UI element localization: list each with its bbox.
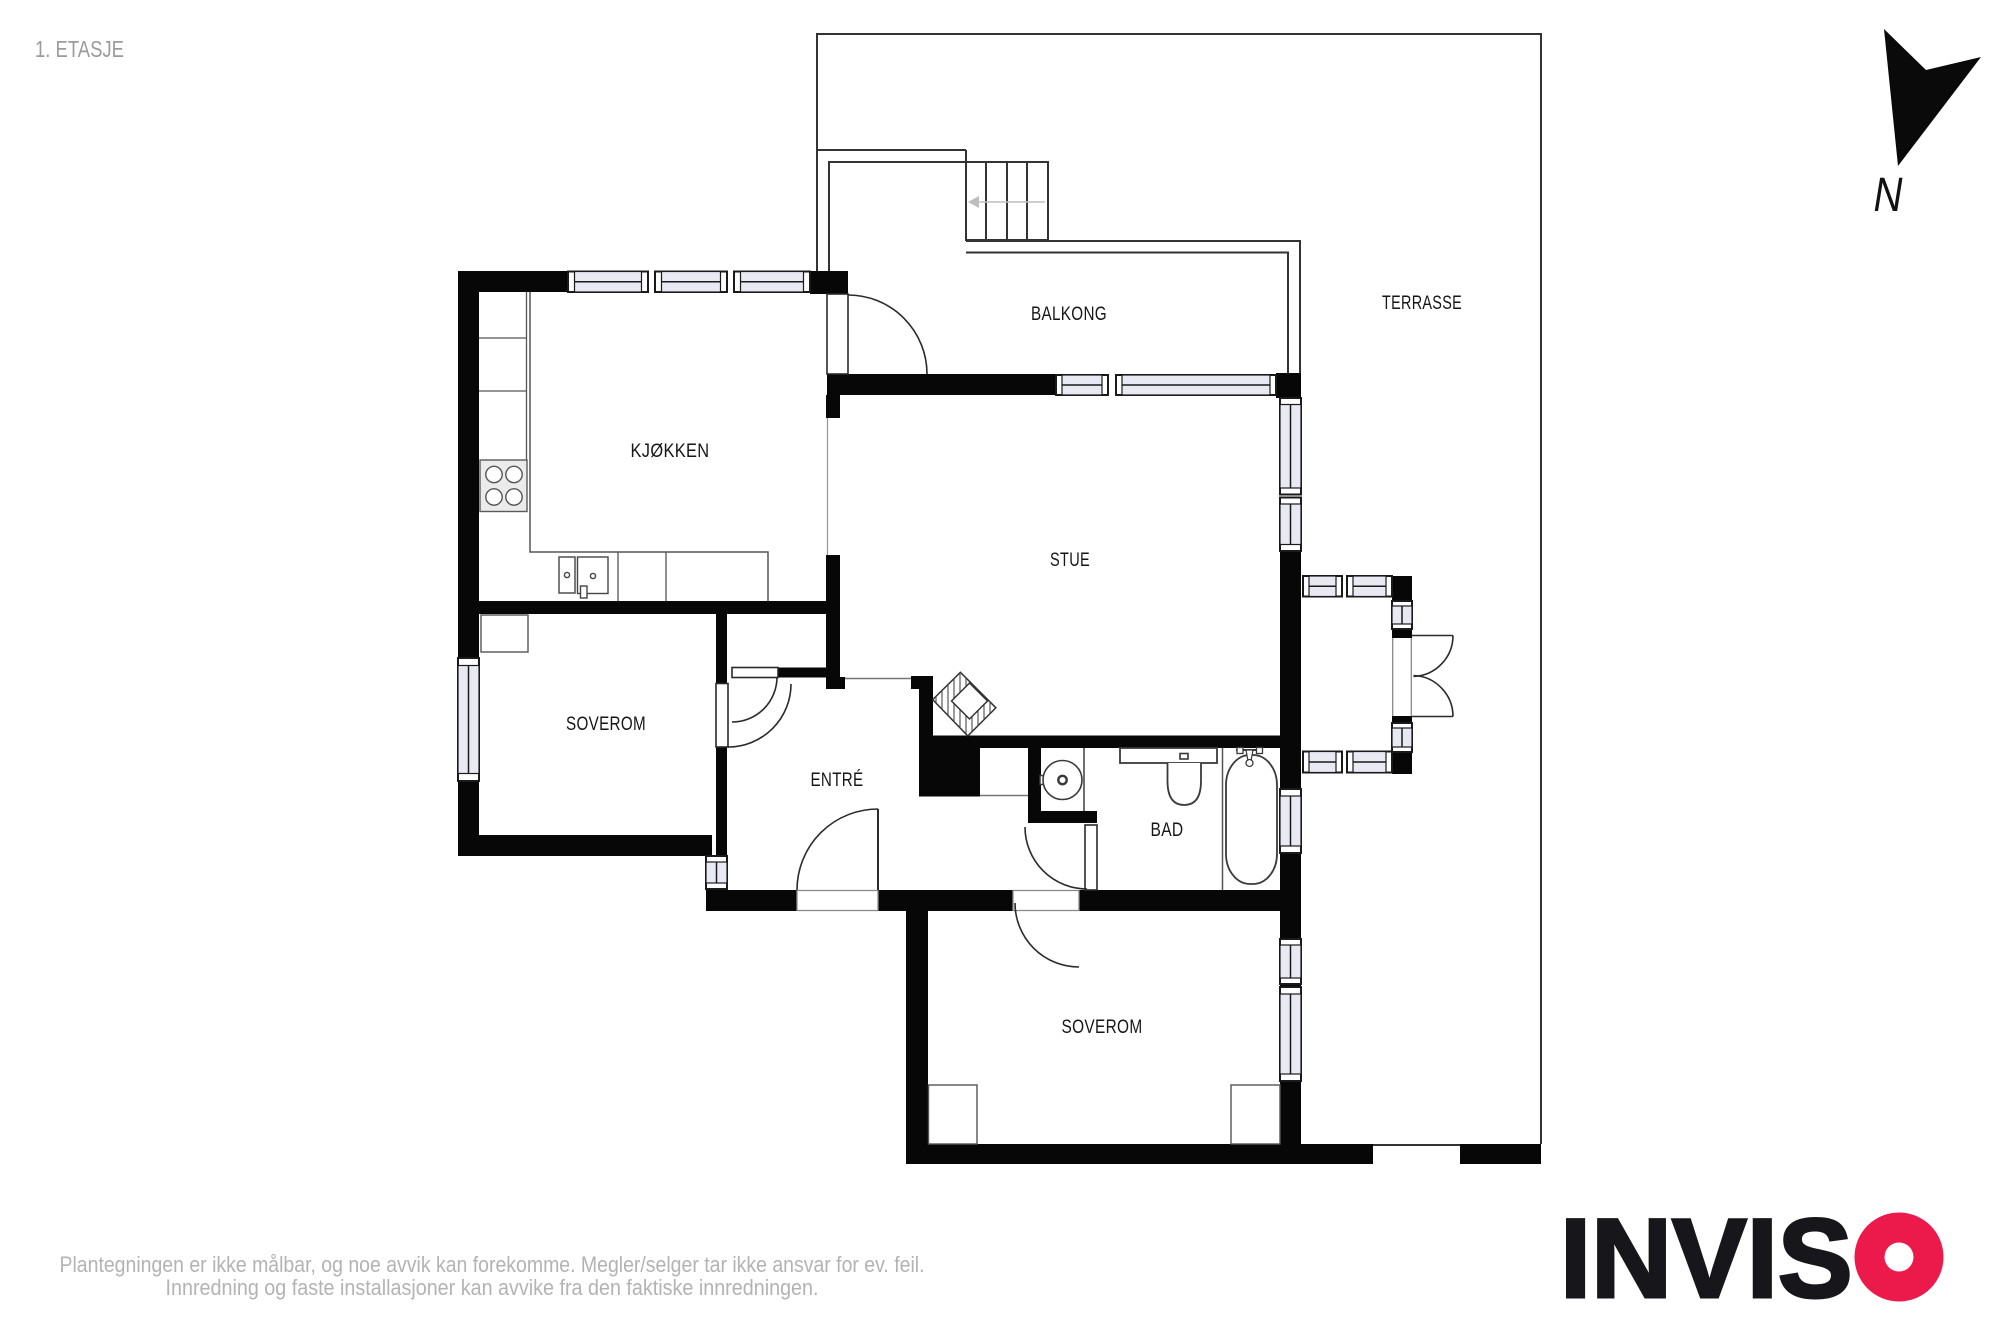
svg-text:Innredning og faste installasj: Innredning og faste installasjoner kan a… [166, 1275, 819, 1300]
svg-text:1. ETASJE: 1. ETASJE [35, 36, 124, 62]
svg-text:SOVEROM: SOVEROM [1062, 1017, 1143, 1038]
svg-text:N: N [1874, 169, 1903, 222]
svg-text:SOVEROM: SOVEROM [566, 714, 646, 735]
svg-text:BAD: BAD [1151, 820, 1184, 841]
svg-text:INVIS: INVIS [1560, 1196, 1853, 1321]
svg-text:KJØKKEN: KJØKKEN [631, 441, 710, 462]
svg-text:STUE: STUE [1050, 550, 1090, 571]
svg-text:TERRASSE: TERRASSE [1382, 293, 1462, 314]
svg-text:BALKONG: BALKONG [1031, 304, 1107, 325]
svg-text:ENTRÉ: ENTRÉ [811, 770, 864, 791]
svg-text:Plantegningen er ikke målbar,: Plantegningen er ikke målbar, og noe avv… [60, 1252, 925, 1277]
